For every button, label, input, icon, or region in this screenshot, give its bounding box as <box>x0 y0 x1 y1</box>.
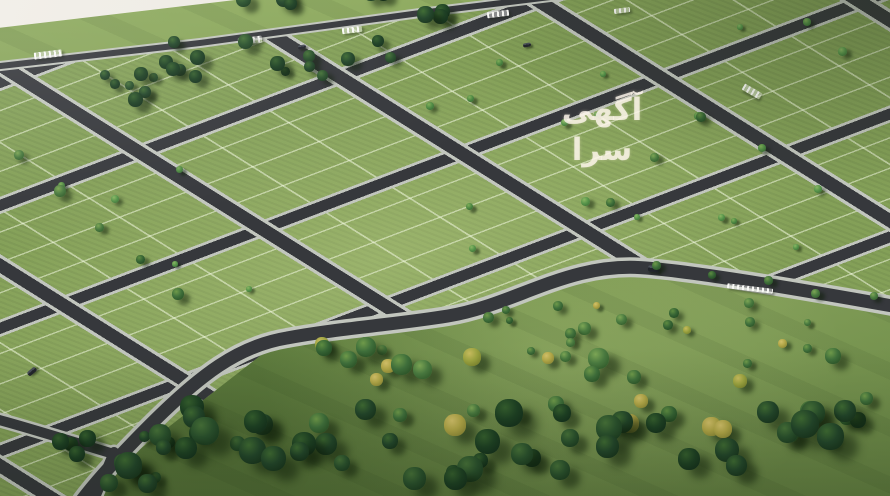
tree <box>100 70 110 80</box>
tree <box>403 467 426 490</box>
tree <box>377 0 390 1</box>
tree <box>14 150 24 160</box>
tree <box>341 52 355 66</box>
tree <box>561 429 579 447</box>
tree <box>542 352 554 364</box>
trees-layer <box>0 0 890 496</box>
tree <box>578 322 591 335</box>
tree <box>134 67 148 81</box>
tree <box>372 35 384 47</box>
tree <box>511 443 533 465</box>
tree <box>125 81 134 90</box>
tree <box>778 339 787 348</box>
tree <box>69 446 85 462</box>
tree <box>527 347 535 355</box>
tree <box>678 448 700 470</box>
tree <box>463 348 481 366</box>
tree <box>444 467 467 490</box>
tree <box>696 112 706 122</box>
tree <box>168 36 180 48</box>
tree <box>244 410 267 433</box>
tree <box>128 92 143 107</box>
tree <box>506 317 513 324</box>
tree <box>737 24 743 30</box>
tree <box>708 271 716 279</box>
tree <box>190 50 205 65</box>
tree <box>417 6 434 23</box>
tree <box>870 292 878 300</box>
tree <box>834 400 856 422</box>
tree <box>814 185 822 193</box>
tree <box>467 95 474 102</box>
tree <box>606 198 615 207</box>
tree <box>304 61 315 72</box>
tree <box>825 348 841 364</box>
tree <box>553 404 571 422</box>
tree <box>758 144 766 152</box>
tree <box>334 455 350 471</box>
tree <box>176 166 183 173</box>
tree <box>444 414 466 436</box>
tree <box>79 430 96 447</box>
tree <box>393 408 407 422</box>
tree <box>382 433 398 449</box>
tree <box>495 399 523 427</box>
tree <box>743 359 752 368</box>
tree <box>172 261 178 267</box>
tree <box>646 413 666 433</box>
tree <box>593 302 600 309</box>
tree <box>175 437 197 459</box>
tree <box>54 185 66 197</box>
tree <box>650 153 659 162</box>
tree <box>111 195 119 203</box>
tree <box>584 366 600 382</box>
tree <box>634 214 640 220</box>
tree <box>793 244 799 250</box>
tree <box>246 286 252 292</box>
tree <box>475 429 500 454</box>
tree <box>757 401 779 423</box>
tree <box>317 70 328 81</box>
tree <box>731 218 737 224</box>
tree <box>236 0 251 7</box>
tree <box>290 442 309 461</box>
tree <box>663 320 673 330</box>
tree <box>791 410 819 438</box>
tree <box>100 474 118 492</box>
tree <box>110 79 120 89</box>
tree <box>560 351 571 362</box>
tree <box>817 423 844 450</box>
tree <box>284 0 297 10</box>
tree <box>726 455 747 476</box>
tree <box>391 354 412 375</box>
tree <box>95 223 104 232</box>
tree <box>356 337 376 357</box>
tree <box>261 446 286 471</box>
tree <box>596 435 619 458</box>
tree <box>377 345 387 355</box>
tree <box>764 276 773 285</box>
tree <box>355 399 376 420</box>
tree <box>744 298 754 308</box>
tree <box>385 52 396 63</box>
tree <box>309 413 329 433</box>
tree <box>745 317 755 327</box>
tree <box>733 374 747 388</box>
tree <box>115 452 142 479</box>
tree <box>803 344 812 353</box>
tree <box>683 326 691 334</box>
tree <box>172 288 184 300</box>
tree <box>413 360 432 379</box>
tree <box>811 289 820 298</box>
tree <box>166 62 180 76</box>
tree <box>502 306 510 314</box>
tree <box>316 340 332 356</box>
tree <box>483 312 494 323</box>
tree <box>426 102 434 110</box>
tree <box>238 34 253 49</box>
tree <box>149 73 158 82</box>
land-development-aerial-render: آگهی سرا <box>0 0 890 496</box>
tree <box>616 314 627 325</box>
tree <box>718 214 725 221</box>
tree <box>714 420 732 438</box>
watermark-text: آگهی سرا <box>529 90 675 130</box>
tree <box>270 56 285 71</box>
tree <box>581 197 590 206</box>
tree <box>52 433 69 450</box>
tree <box>804 319 811 326</box>
tree <box>627 370 641 384</box>
tree <box>138 474 157 493</box>
tree <box>634 394 648 408</box>
tree <box>469 245 476 252</box>
tree <box>467 404 480 417</box>
tree <box>496 59 503 66</box>
tree <box>370 373 383 386</box>
tree <box>189 70 202 83</box>
tree <box>136 255 145 264</box>
tree <box>803 18 811 26</box>
tree <box>363 0 379 1</box>
tree <box>433 9 448 24</box>
tree <box>566 338 575 347</box>
tree <box>860 392 873 405</box>
tree <box>315 433 337 455</box>
tree <box>652 261 661 270</box>
tree <box>600 71 606 77</box>
tree <box>669 308 679 318</box>
tree <box>340 351 357 368</box>
tree <box>156 440 171 455</box>
tree <box>550 460 570 480</box>
tree <box>553 301 563 311</box>
tree <box>466 203 473 210</box>
tree <box>838 47 847 56</box>
